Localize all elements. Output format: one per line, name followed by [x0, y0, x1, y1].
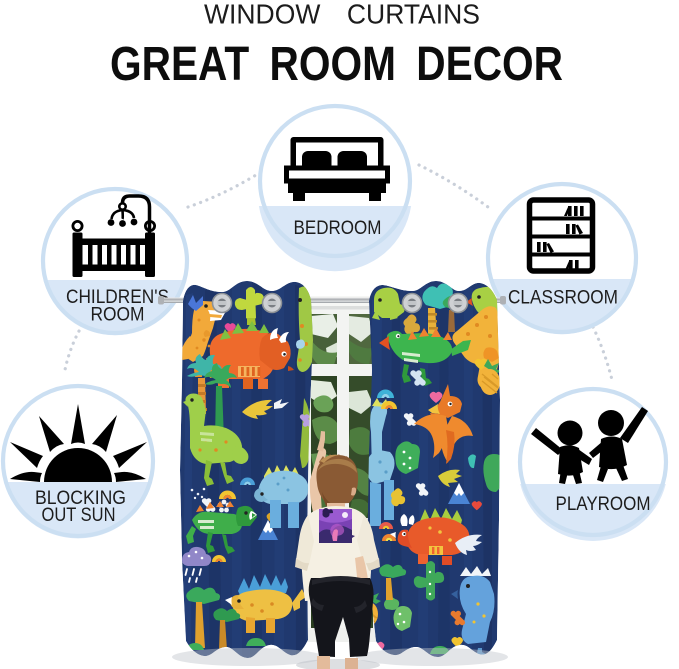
- svg-text:OUT SUN: OUT SUN: [42, 505, 116, 526]
- svg-text:GREAT ROOM DECOR: GREAT ROOM DECOR: [110, 37, 563, 91]
- svg-text:WINDOW CURTAINS: WINDOW CURTAINS: [204, 0, 480, 30]
- svg-text:BEDROOM: BEDROOM: [294, 218, 382, 239]
- svg-text:CLASSROOM: CLASSROOM: [508, 288, 618, 309]
- svg-text:ROOM: ROOM: [91, 305, 145, 326]
- svg-text:PLAYROOM: PLAYROOM: [556, 494, 651, 515]
